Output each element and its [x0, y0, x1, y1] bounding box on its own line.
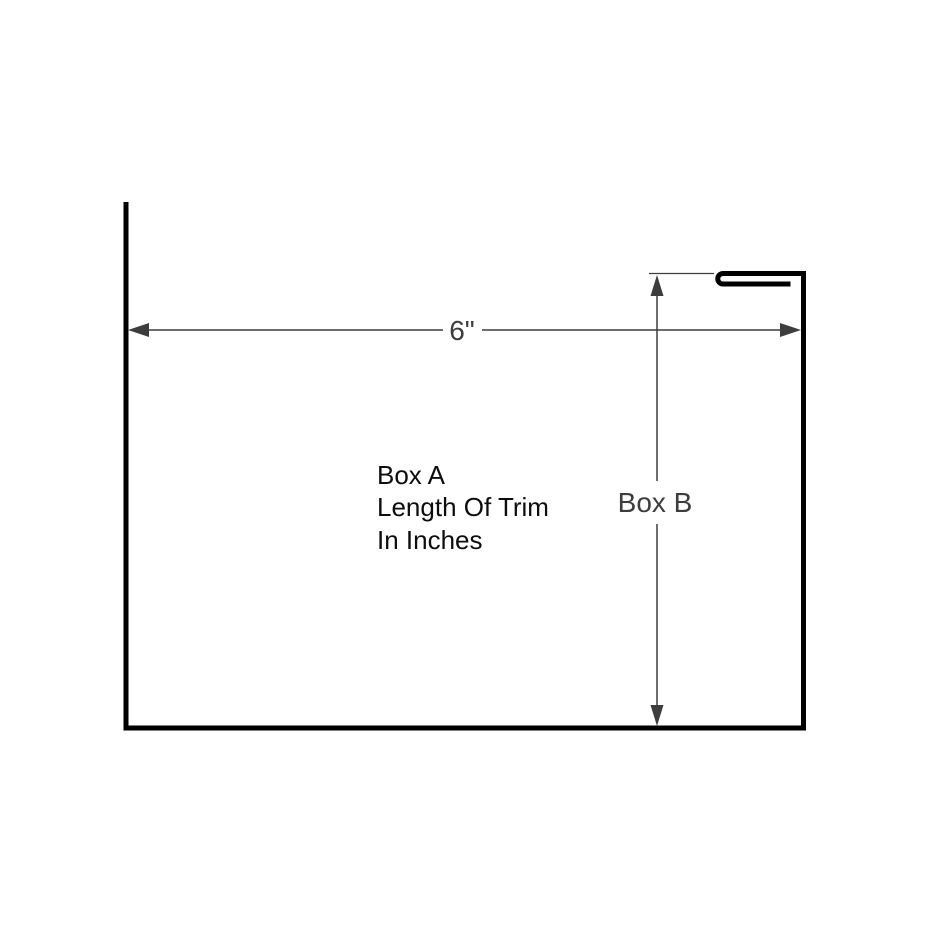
trim-profile-diagram: 6" Box B Box A Length Of Trim In Inches: [0, 0, 930, 930]
arrowhead-down-icon: [651, 705, 664, 726]
arrowhead-up-icon: [651, 275, 664, 296]
diagram-canvas: 6" Box B Box A Length Of Trim In Inches: [0, 0, 930, 930]
box-a-label-line2: Length Of Trim: [377, 492, 549, 522]
box-a-label-line3: In Inches: [377, 525, 483, 555]
box-a-label-line1: Box A: [377, 460, 446, 490]
trim-profile-outline: [126, 202, 804, 728]
arrowhead-right-icon: [780, 323, 801, 337]
arrowhead-left-icon: [128, 323, 149, 337]
horizontal-dimension-label: 6": [449, 315, 475, 346]
box-b-label: Box B: [618, 487, 693, 518]
